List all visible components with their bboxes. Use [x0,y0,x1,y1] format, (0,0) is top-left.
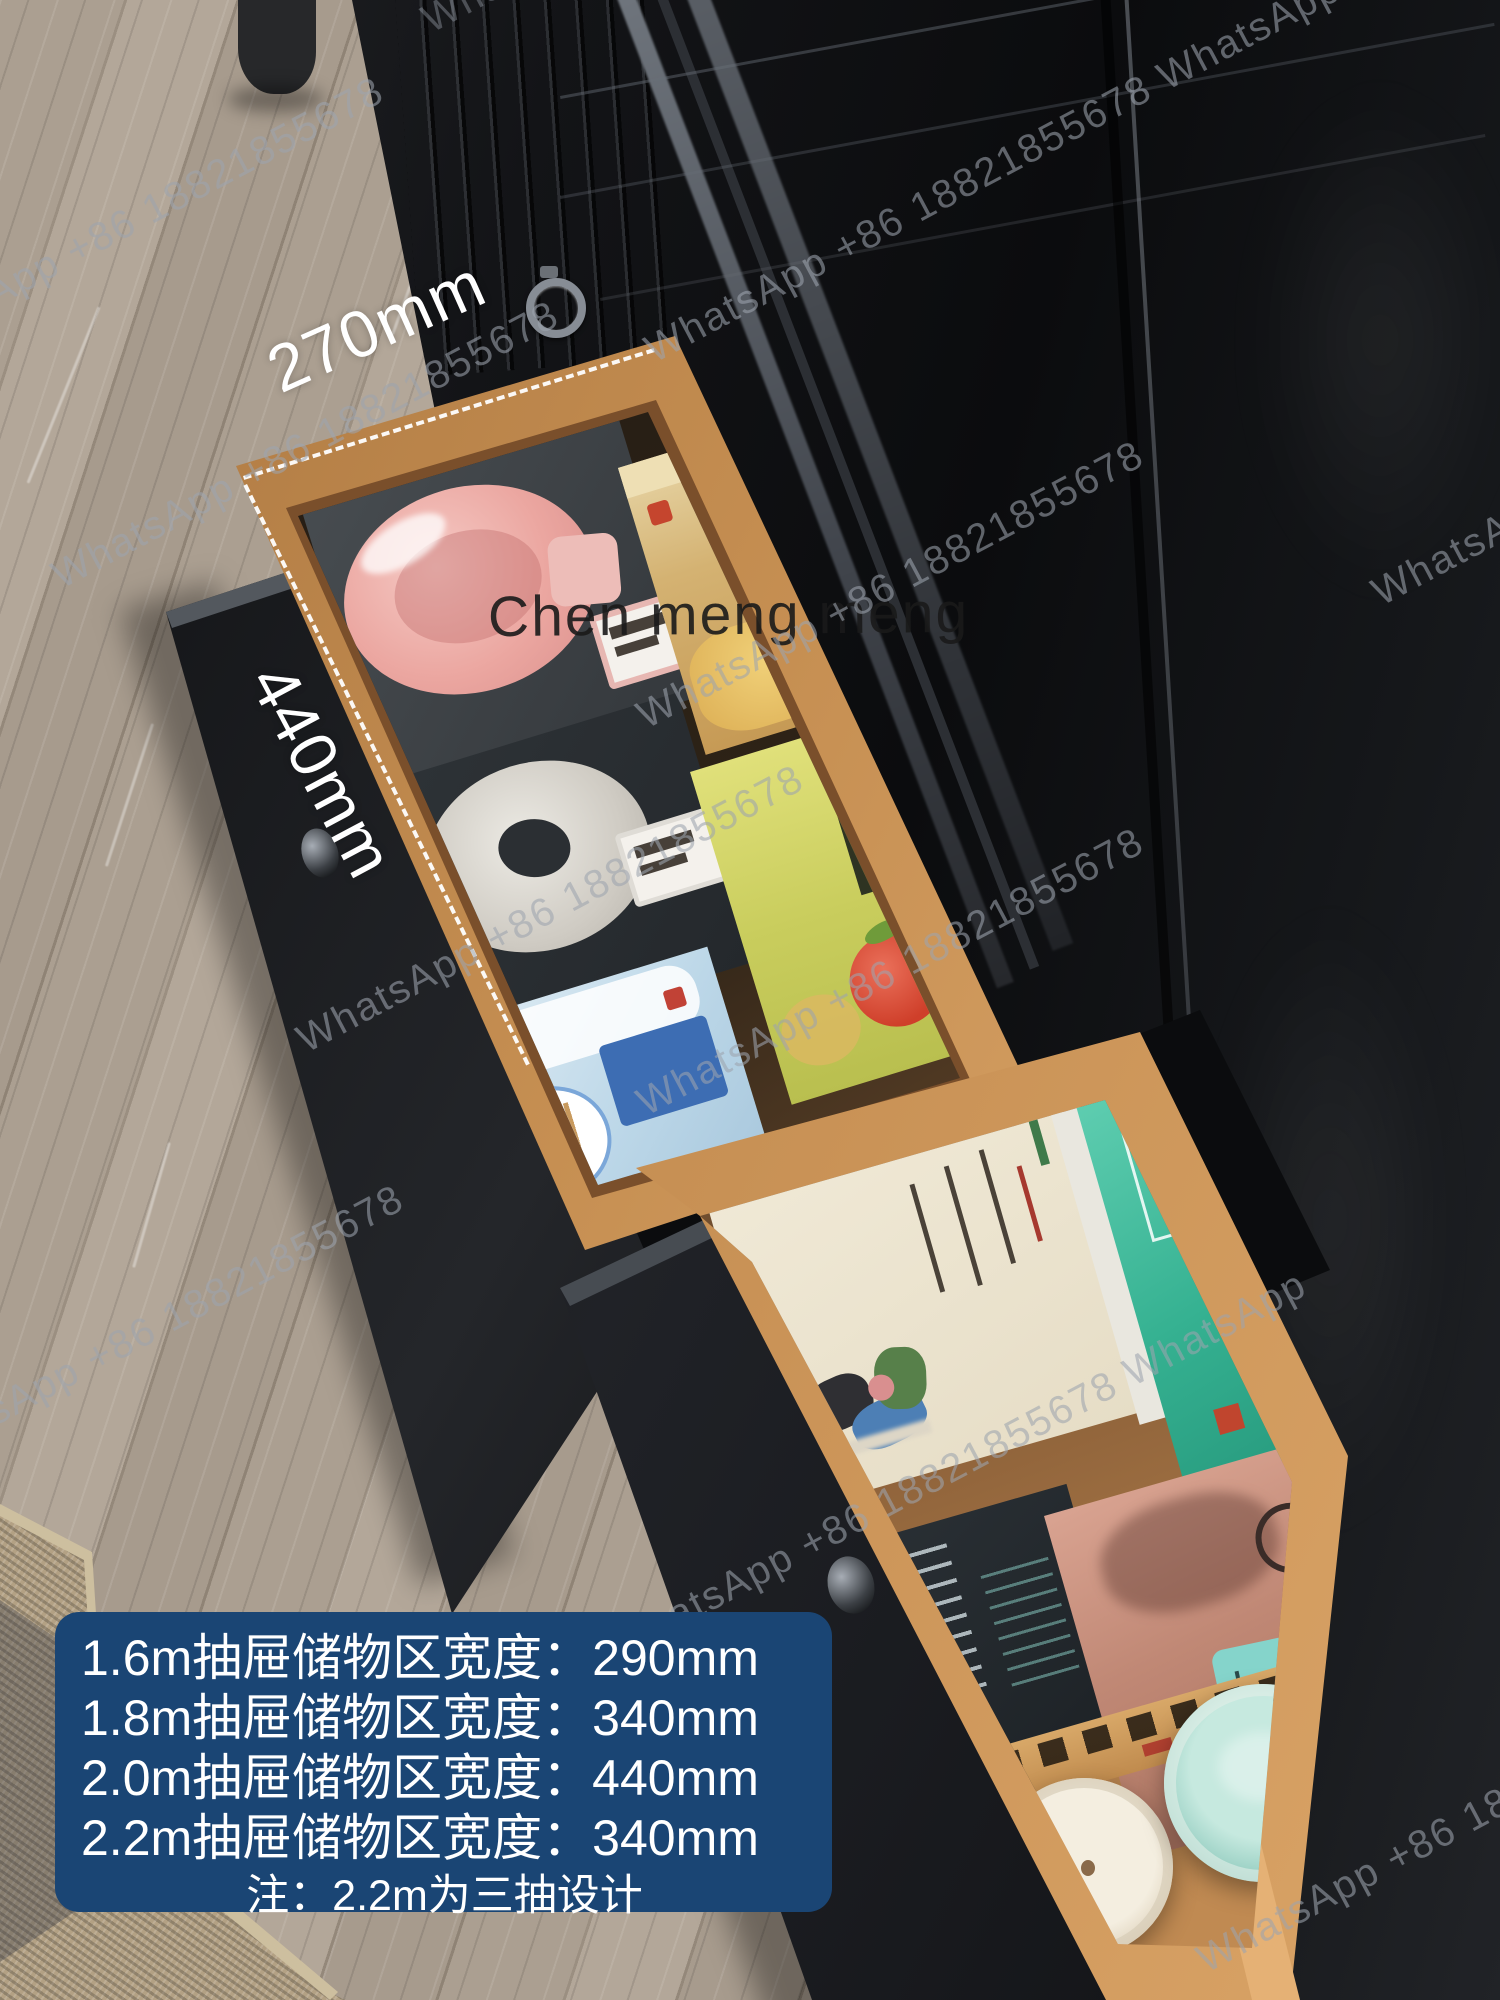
spec-line-1.8m: 1.8m抽屉储物区宽度：340mm [81,1688,808,1748]
book-text-column [909,1184,945,1293]
chips-logo [646,499,673,526]
spec-line-1.6m: 1.6m抽屉储物区宽度：290mm [81,1628,808,1688]
product-photo: 270mm 440mm Chen meng meng WhatsApp +86 … [0,0,1500,2000]
book-text-column [979,1149,1016,1264]
spec-line-2.2m: 2.2m抽屉储物区宽度：340mm [81,1808,808,1868]
cabinet-reflection [1250,80,1500,600]
furniture-caster [238,0,316,94]
ring-pull-plate [540,266,558,278]
book-bamboo-mark [1029,1119,1050,1166]
book-text-column-red [1017,1165,1043,1241]
spec-info-box: 1.6m抽屉储物区宽度：290mm 1.8m抽屉储物区宽度：340mm 2.0m… [55,1612,832,1912]
red-seal [1213,1403,1245,1435]
spec-line-2.0m: 2.0m抽屉储物区宽度：440mm [81,1748,808,1808]
book-text-column [944,1165,983,1286]
spec-note: 注：2.2m为三抽设计 [81,1870,808,1922]
candle-wick [1081,1860,1095,1876]
